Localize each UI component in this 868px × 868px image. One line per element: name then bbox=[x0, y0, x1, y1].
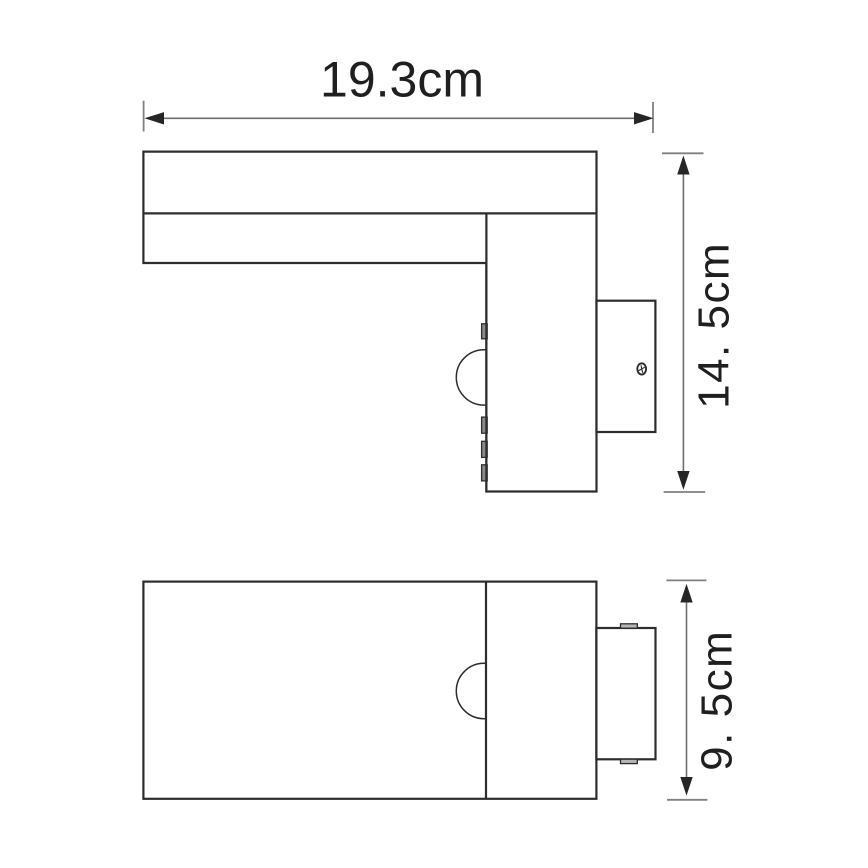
svg-text:19.3cm: 19.3cm bbox=[320, 51, 484, 107]
svg-text:14. 5cm: 14. 5cm bbox=[690, 242, 739, 409]
svg-text:9. 5cm: 9. 5cm bbox=[693, 630, 742, 771]
